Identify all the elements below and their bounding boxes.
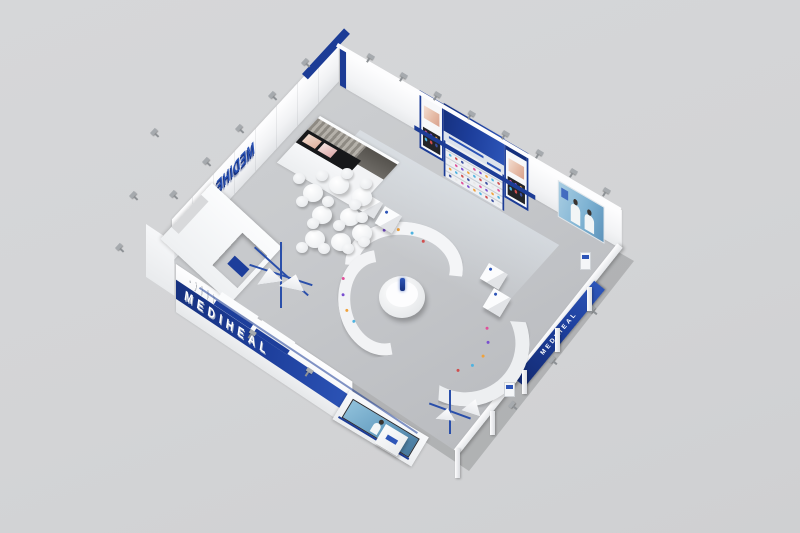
spotlight	[301, 58, 309, 66]
stool	[318, 243, 330, 254]
model-photo	[424, 105, 440, 127]
stool	[296, 196, 308, 207]
face-thumbnail	[302, 134, 322, 149]
stool	[293, 173, 305, 184]
stool	[342, 243, 354, 254]
spotlight	[169, 190, 177, 198]
spotlight	[115, 243, 123, 251]
product-stand	[580, 252, 591, 270]
stool	[307, 218, 319, 229]
spotlight	[434, 91, 442, 98]
stool	[349, 199, 361, 210]
spotlight	[129, 191, 137, 199]
stool	[316, 170, 328, 181]
stool	[360, 178, 372, 189]
frame-post	[587, 287, 592, 311]
hero-product	[400, 278, 405, 291]
frame-post	[490, 411, 495, 435]
spotlight	[202, 157, 210, 165]
stool	[358, 236, 370, 247]
stool	[296, 242, 308, 253]
center-podium	[379, 276, 425, 318]
stool	[333, 220, 345, 231]
spotlight	[400, 72, 408, 79]
stool	[341, 168, 353, 179]
booth-render: MEDIHEAL MEDIHEAL	[0, 0, 800, 533]
spotlight	[367, 53, 375, 60]
model-photo	[509, 158, 525, 180]
frame-post	[555, 328, 560, 352]
frame-post	[455, 448, 460, 478]
face-thumbnail	[317, 143, 337, 158]
screen-graphic	[561, 188, 568, 201]
desk-logo	[385, 434, 398, 444]
spotlight	[268, 91, 276, 99]
spotlight	[536, 149, 544, 156]
model-figure	[571, 202, 581, 226]
spotlight	[235, 124, 243, 132]
navy-accent-panel	[340, 46, 346, 89]
model-figure	[585, 213, 595, 235]
spotlight	[570, 168, 578, 175]
stool	[356, 212, 368, 223]
product-stand	[504, 382, 515, 397]
spotlight	[502, 130, 510, 137]
spotlight	[150, 128, 158, 136]
stool	[322, 196, 334, 207]
spotlight	[603, 187, 611, 194]
spotlight	[468, 110, 476, 117]
frame-post	[522, 370, 527, 394]
